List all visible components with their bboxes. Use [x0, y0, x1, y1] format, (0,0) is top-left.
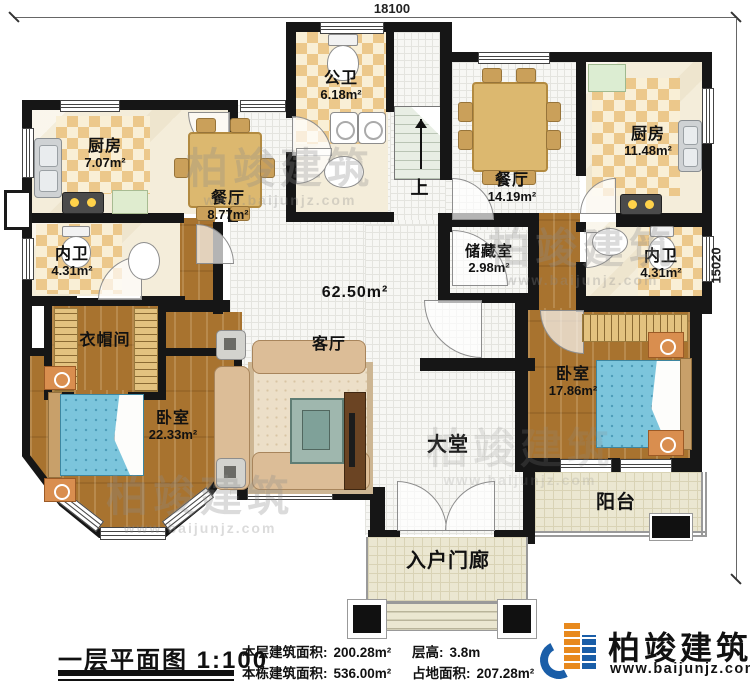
- wall: [576, 52, 586, 176]
- room-label-living-area: 62.50m²: [305, 284, 405, 302]
- window: [22, 238, 34, 280]
- stove-icon: [620, 194, 662, 215]
- wardrobe-right: [134, 308, 158, 392]
- coffee-table: [290, 398, 344, 464]
- window: [620, 459, 672, 473]
- wall-niche: [4, 190, 32, 230]
- wall: [22, 213, 184, 223]
- nightstand: [44, 366, 76, 390]
- wall: [386, 32, 394, 112]
- sink-icon: [128, 242, 160, 280]
- window: [560, 459, 612, 473]
- room-label-porch: 入户门廊: [386, 550, 510, 572]
- washer-icon: [358, 112, 386, 144]
- footer: 一层平面图 1:100 本层建筑面积:200.28m² 本栋建筑面积:536.0…: [0, 615, 750, 690]
- room-label-dining-left: 餐厅8.77m²: [182, 190, 274, 222]
- wall: [420, 358, 535, 371]
- floorplan: 厨房7.07m² 餐厅8.77m² 公卫6.18m² 上 餐厅14.19m² 厨…: [0, 0, 750, 620]
- brand-logo-icon: [540, 617, 604, 683]
- chair-icon: [174, 158, 189, 178]
- tv-cabinet: [344, 392, 366, 490]
- nightstand: [648, 332, 684, 358]
- stat-footprint-area: 占地面积:207.28m²: [412, 662, 534, 683]
- title-rule-thick: [58, 670, 234, 676]
- title-rule-thin: [58, 679, 234, 681]
- room-label-dining-right: 餐厅14.19m²: [470, 172, 554, 204]
- window: [22, 128, 34, 178]
- floorplan-canvas: 厨房7.07m² 餐厅8.77m² 公卫6.18m² 上 餐厅14.19m² 厨…: [0, 0, 750, 690]
- wall: [670, 458, 702, 472]
- chair-icon: [458, 102, 473, 122]
- dimension-line-right: [736, 18, 737, 580]
- room-label-living: 客厅: [296, 336, 362, 354]
- wall: [22, 100, 238, 110]
- door-arc: [196, 224, 234, 264]
- chair-icon: [230, 118, 250, 133]
- stat-floor-area: 本层建筑面积:200.28m²: [242, 641, 391, 662]
- fridge-icon: [588, 64, 626, 92]
- brand-website: www.baijunjz.com: [610, 661, 750, 677]
- stat-storey-height: 层高:3.8m: [412, 641, 480, 662]
- bay-window: [100, 527, 166, 540]
- stat-building-area: 本栋建筑面积:536.00m²: [242, 662, 391, 683]
- window: [320, 22, 384, 34]
- balcony-post: [650, 514, 692, 540]
- nightstand: [44, 478, 76, 502]
- dimension-line-top: [13, 17, 737, 18]
- room-label-balcony: 阳台: [584, 492, 648, 513]
- room-label-storage: 储藏室2.98m²: [448, 244, 530, 275]
- wall: [523, 460, 535, 536]
- room-label-bedroom-left: 卧室22.33m²: [124, 410, 222, 442]
- dining-table: [472, 82, 548, 172]
- room-label-public-bath: 公卫6.18m²: [300, 70, 382, 102]
- side-table: [216, 330, 246, 360]
- wall: [440, 22, 452, 180]
- room-label-stairs-up: 上: [398, 178, 442, 198]
- window: [240, 100, 286, 112]
- chair-icon: [546, 102, 561, 122]
- dimension-right-label: 15020: [709, 242, 724, 290]
- wall: [616, 213, 712, 227]
- wall: [576, 222, 586, 232]
- window: [702, 88, 714, 144]
- balcony-railing: [701, 472, 707, 535]
- room-label-inner-bath-right: 内卫4.31m²: [622, 248, 700, 280]
- wall: [286, 22, 296, 118]
- wall: [515, 458, 560, 472]
- wall: [286, 212, 394, 222]
- floor-corridor-right: [537, 213, 580, 313]
- chair-icon: [482, 68, 502, 83]
- chair-icon: [260, 158, 275, 178]
- sink-icon: [324, 156, 364, 188]
- side-table: [216, 458, 246, 488]
- window: [478, 52, 550, 64]
- room-label-hall: 大堂: [416, 434, 480, 456]
- washer-icon: [330, 112, 358, 144]
- room-label-bedroom-right: 卧室17.86m²: [524, 366, 622, 398]
- wall: [160, 300, 230, 312]
- room-label-inner-bath-left: 内卫4.31m²: [34, 246, 110, 278]
- window: [60, 100, 120, 112]
- dimension-top-label: 18100: [362, 1, 422, 16]
- room-label-cloakroom: 衣帽间: [58, 332, 152, 350]
- stove-icon: [62, 192, 104, 214]
- room-label-kitchen-right: 厨房11.48m²: [604, 126, 692, 158]
- counter-board: [112, 190, 148, 214]
- room-label-kitchen-left: 厨房7.07m²: [57, 138, 153, 170]
- chair-icon: [458, 130, 473, 150]
- nightstand: [648, 430, 684, 456]
- chair-icon: [516, 68, 536, 83]
- wall: [578, 296, 712, 310]
- chair-icon: [546, 130, 561, 150]
- chair-icon: [196, 118, 216, 133]
